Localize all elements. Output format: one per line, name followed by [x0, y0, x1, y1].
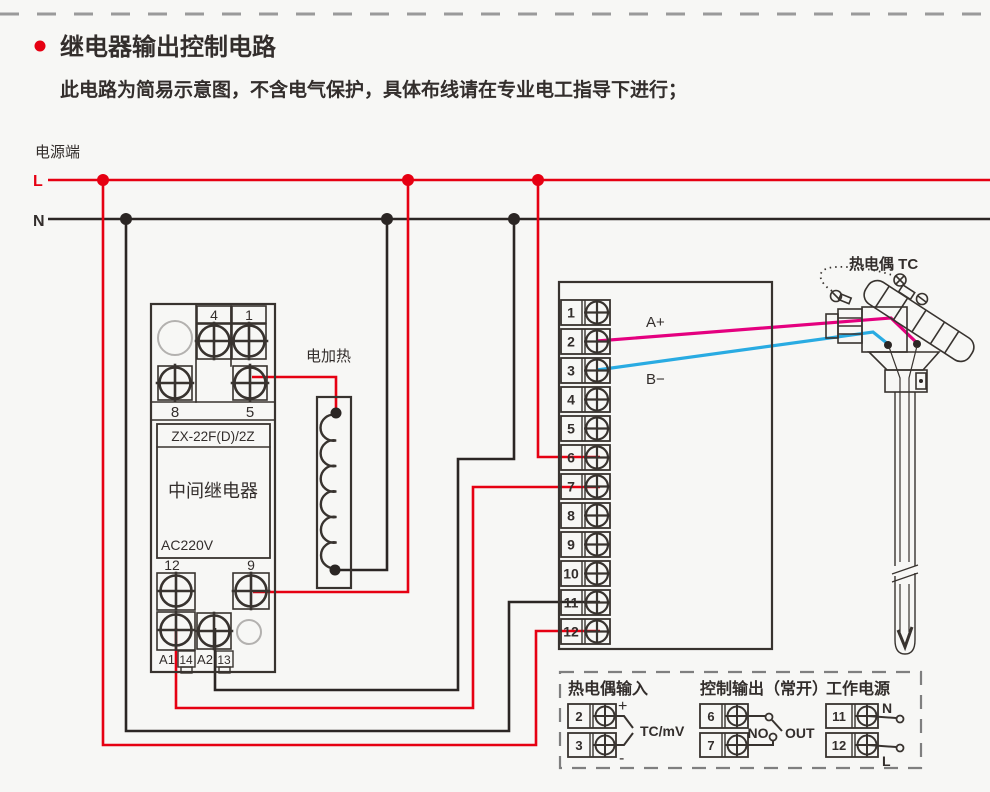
terminal-screw: [584, 416, 610, 441]
terminal-unit: 12: [561, 619, 610, 644]
power-l-contact: [897, 745, 904, 752]
terminal-unit: 10: [561, 561, 610, 586]
terminal-screw: [584, 590, 610, 615]
relay-screw-5: [232, 365, 268, 401]
power-terminal-label: 电源端: [35, 144, 80, 161]
relay-screw-4: [196, 323, 232, 359]
heater-top-post: [331, 408, 342, 419]
legend-tc-signal: TC/mV: [640, 723, 685, 739]
relay-terminal-14-label: 14: [179, 653, 193, 667]
legend-terminal-number: 6: [707, 709, 714, 724]
legend-control-output: 控制输出（常开） 67 NO OUT: [700, 679, 828, 757]
legend-l-label: L: [882, 753, 891, 769]
terminal-number: 11: [564, 595, 579, 611]
relay-screw-9: [233, 573, 269, 609]
legend-no-label: NO: [748, 725, 769, 741]
no-contact-lever: [772, 720, 782, 731]
title-bullet: [35, 41, 46, 52]
relay-terminal-a1-label: A1: [159, 652, 175, 667]
terminal-unit: 9: [561, 532, 610, 557]
legend: 热电偶输入 23 + - TC/mV 控制输出（常开） 67 NO OUT 工作…: [560, 672, 921, 769]
terminal-screw: [584, 445, 610, 470]
relay-terminal-a2-label: A2: [197, 652, 213, 667]
tc-collar: [885, 370, 927, 392]
legend-out-label: OUT: [785, 725, 815, 741]
page-subtitle: 此电路为简易示意图，不含电气保护，具体布线请在专业电工指导下进行；: [60, 78, 687, 101]
terminal-strip: 123456789101112: [561, 300, 610, 644]
legend-control-output-terminals: 67: [700, 704, 749, 757]
legend-tc-plus: +: [618, 698, 627, 715]
relay-model: ZX-22F(D)/2Z: [171, 429, 254, 444]
terminal-screw: [584, 474, 610, 499]
thermocouple-sensor: 热电偶 TC: [821, 255, 979, 654]
relay-terminal-1-label: 1: [245, 307, 253, 323]
power-n-contact: [897, 716, 904, 723]
relay-terminal-8-label: 8: [171, 404, 179, 421]
terminal-number: 7: [567, 479, 575, 495]
wire-live-to-relay9: [253, 180, 408, 592]
no-contact-bottom: [770, 734, 777, 741]
legend-tc-input-title: 热电偶输入: [568, 679, 648, 698]
wiring-diagram-page: 继电器输出控制电路 此电路为简易示意图，不含电气保护，具体布线请在专业电工指导下…: [0, 0, 990, 792]
relay: 4 1 8 5 ZX-22F(D)/2Z 中间继电器 AC220V 12 9 A…: [151, 304, 275, 673]
terminal-screw: [584, 358, 610, 383]
legend-terminal-number: 11: [832, 709, 846, 724]
tc-post-minus: [884, 341, 892, 349]
terminal-number: 9: [567, 537, 575, 553]
terminal-number: 5: [567, 421, 575, 437]
tc-neck: [869, 352, 939, 370]
relay-terminal-4-label: 4: [210, 307, 218, 323]
relay-name: 中间继电器: [168, 481, 258, 501]
terminal-screw: [584, 619, 610, 644]
wire-neutral-to-heater: [340, 219, 387, 570]
legend-tc-input-terminals: 23: [568, 704, 617, 757]
page-title: 继电器输出控制电路: [60, 33, 277, 61]
live-line-label: L: [33, 173, 43, 190]
relay-terminal-5-label: 5: [246, 404, 254, 421]
legend-working-power: 工作电源 1112 N L: [826, 679, 904, 769]
relay-indicator-top: [158, 321, 192, 355]
terminal-unit: 11: [561, 590, 610, 615]
relay-terminal-13-label: 13: [217, 653, 231, 667]
legend-control-output-title: 控制输出（常开）: [700, 679, 828, 698]
terminal-unit: 6: [561, 445, 610, 470]
terminal-screw: [584, 561, 610, 586]
relay-screw-a2: [196, 613, 232, 649]
terminal-unit: 2: [561, 329, 610, 354]
legend-terminal-number: 7: [707, 738, 714, 753]
relay-terminal-12-label: 12: [164, 557, 180, 573]
terminal-unit: 5: [561, 416, 610, 441]
heater: 电加热: [306, 348, 351, 588]
terminal-screw: [584, 532, 610, 557]
terminal-unit: 4: [561, 387, 610, 412]
legend-tc-minus: -: [619, 750, 624, 767]
terminal-screw: [584, 387, 610, 412]
relay-terminal-9-label: 9: [247, 557, 255, 573]
legend-terminal-number: 2: [575, 709, 582, 724]
tc-left-screw: [831, 291, 852, 304]
legend-working-power-terminals: 1112: [826, 704, 879, 757]
terminal-unit: 8: [561, 503, 610, 528]
wire-relayA2-to-neutral: [215, 219, 514, 690]
legend-terminal-number: 3: [575, 738, 582, 753]
no-contact-top: [766, 714, 773, 721]
terminal-number: 4: [567, 392, 575, 408]
heater-coil: [321, 415, 337, 570]
relay-screw-1: [231, 323, 267, 359]
power-rails: 电源端 L N: [33, 144, 990, 230]
relay-screw-8: [157, 365, 193, 401]
heater-label: 电加热: [306, 348, 351, 365]
terminal-number: 8: [567, 508, 575, 524]
terminal-screw: [584, 329, 610, 354]
neutral-line-label: N: [33, 213, 45, 230]
terminal-number: 12: [563, 624, 579, 640]
terminal-screw: [584, 503, 610, 528]
tc-minus-terminal-label: B−: [646, 371, 665, 388]
terminal-screw: [584, 300, 610, 325]
thermocouple-label: 热电偶 TC: [849, 255, 918, 273]
wiring-diagram-svg: 继电器输出控制电路 此电路为简易示意图，不含电气保护，具体布线请在专业电工指导下…: [0, 0, 990, 792]
relay-screw-12: [158, 573, 194, 609]
relay-voltage: AC220V: [161, 537, 214, 553]
terminal-number: 2: [567, 334, 575, 350]
terminal-number: 10: [563, 566, 579, 582]
terminal-number: 6: [567, 450, 575, 466]
terminal-unit: 1: [561, 300, 610, 325]
heater-bottom-post: [330, 565, 341, 576]
relay-indicator-bottom: [237, 620, 261, 644]
terminal-number: 3: [567, 363, 575, 379]
legend-tc-input: 热电偶输入 23 + - TC/mV: [568, 679, 685, 767]
legend-working-power-title: 工作电源: [826, 679, 890, 698]
legend-terminal-number: 12: [832, 738, 846, 753]
tc-plus-terminal-label: A+: [646, 314, 665, 331]
relay-screw-a1: [158, 612, 194, 648]
terminal-unit: 3: [561, 358, 610, 383]
wire-tc-plus: [597, 318, 917, 343]
terminal-unit: 7: [561, 474, 610, 499]
tc-hex-fitting: [826, 309, 862, 343]
legend-n-label: N: [882, 700, 892, 716]
terminal-number: 1: [567, 305, 575, 321]
